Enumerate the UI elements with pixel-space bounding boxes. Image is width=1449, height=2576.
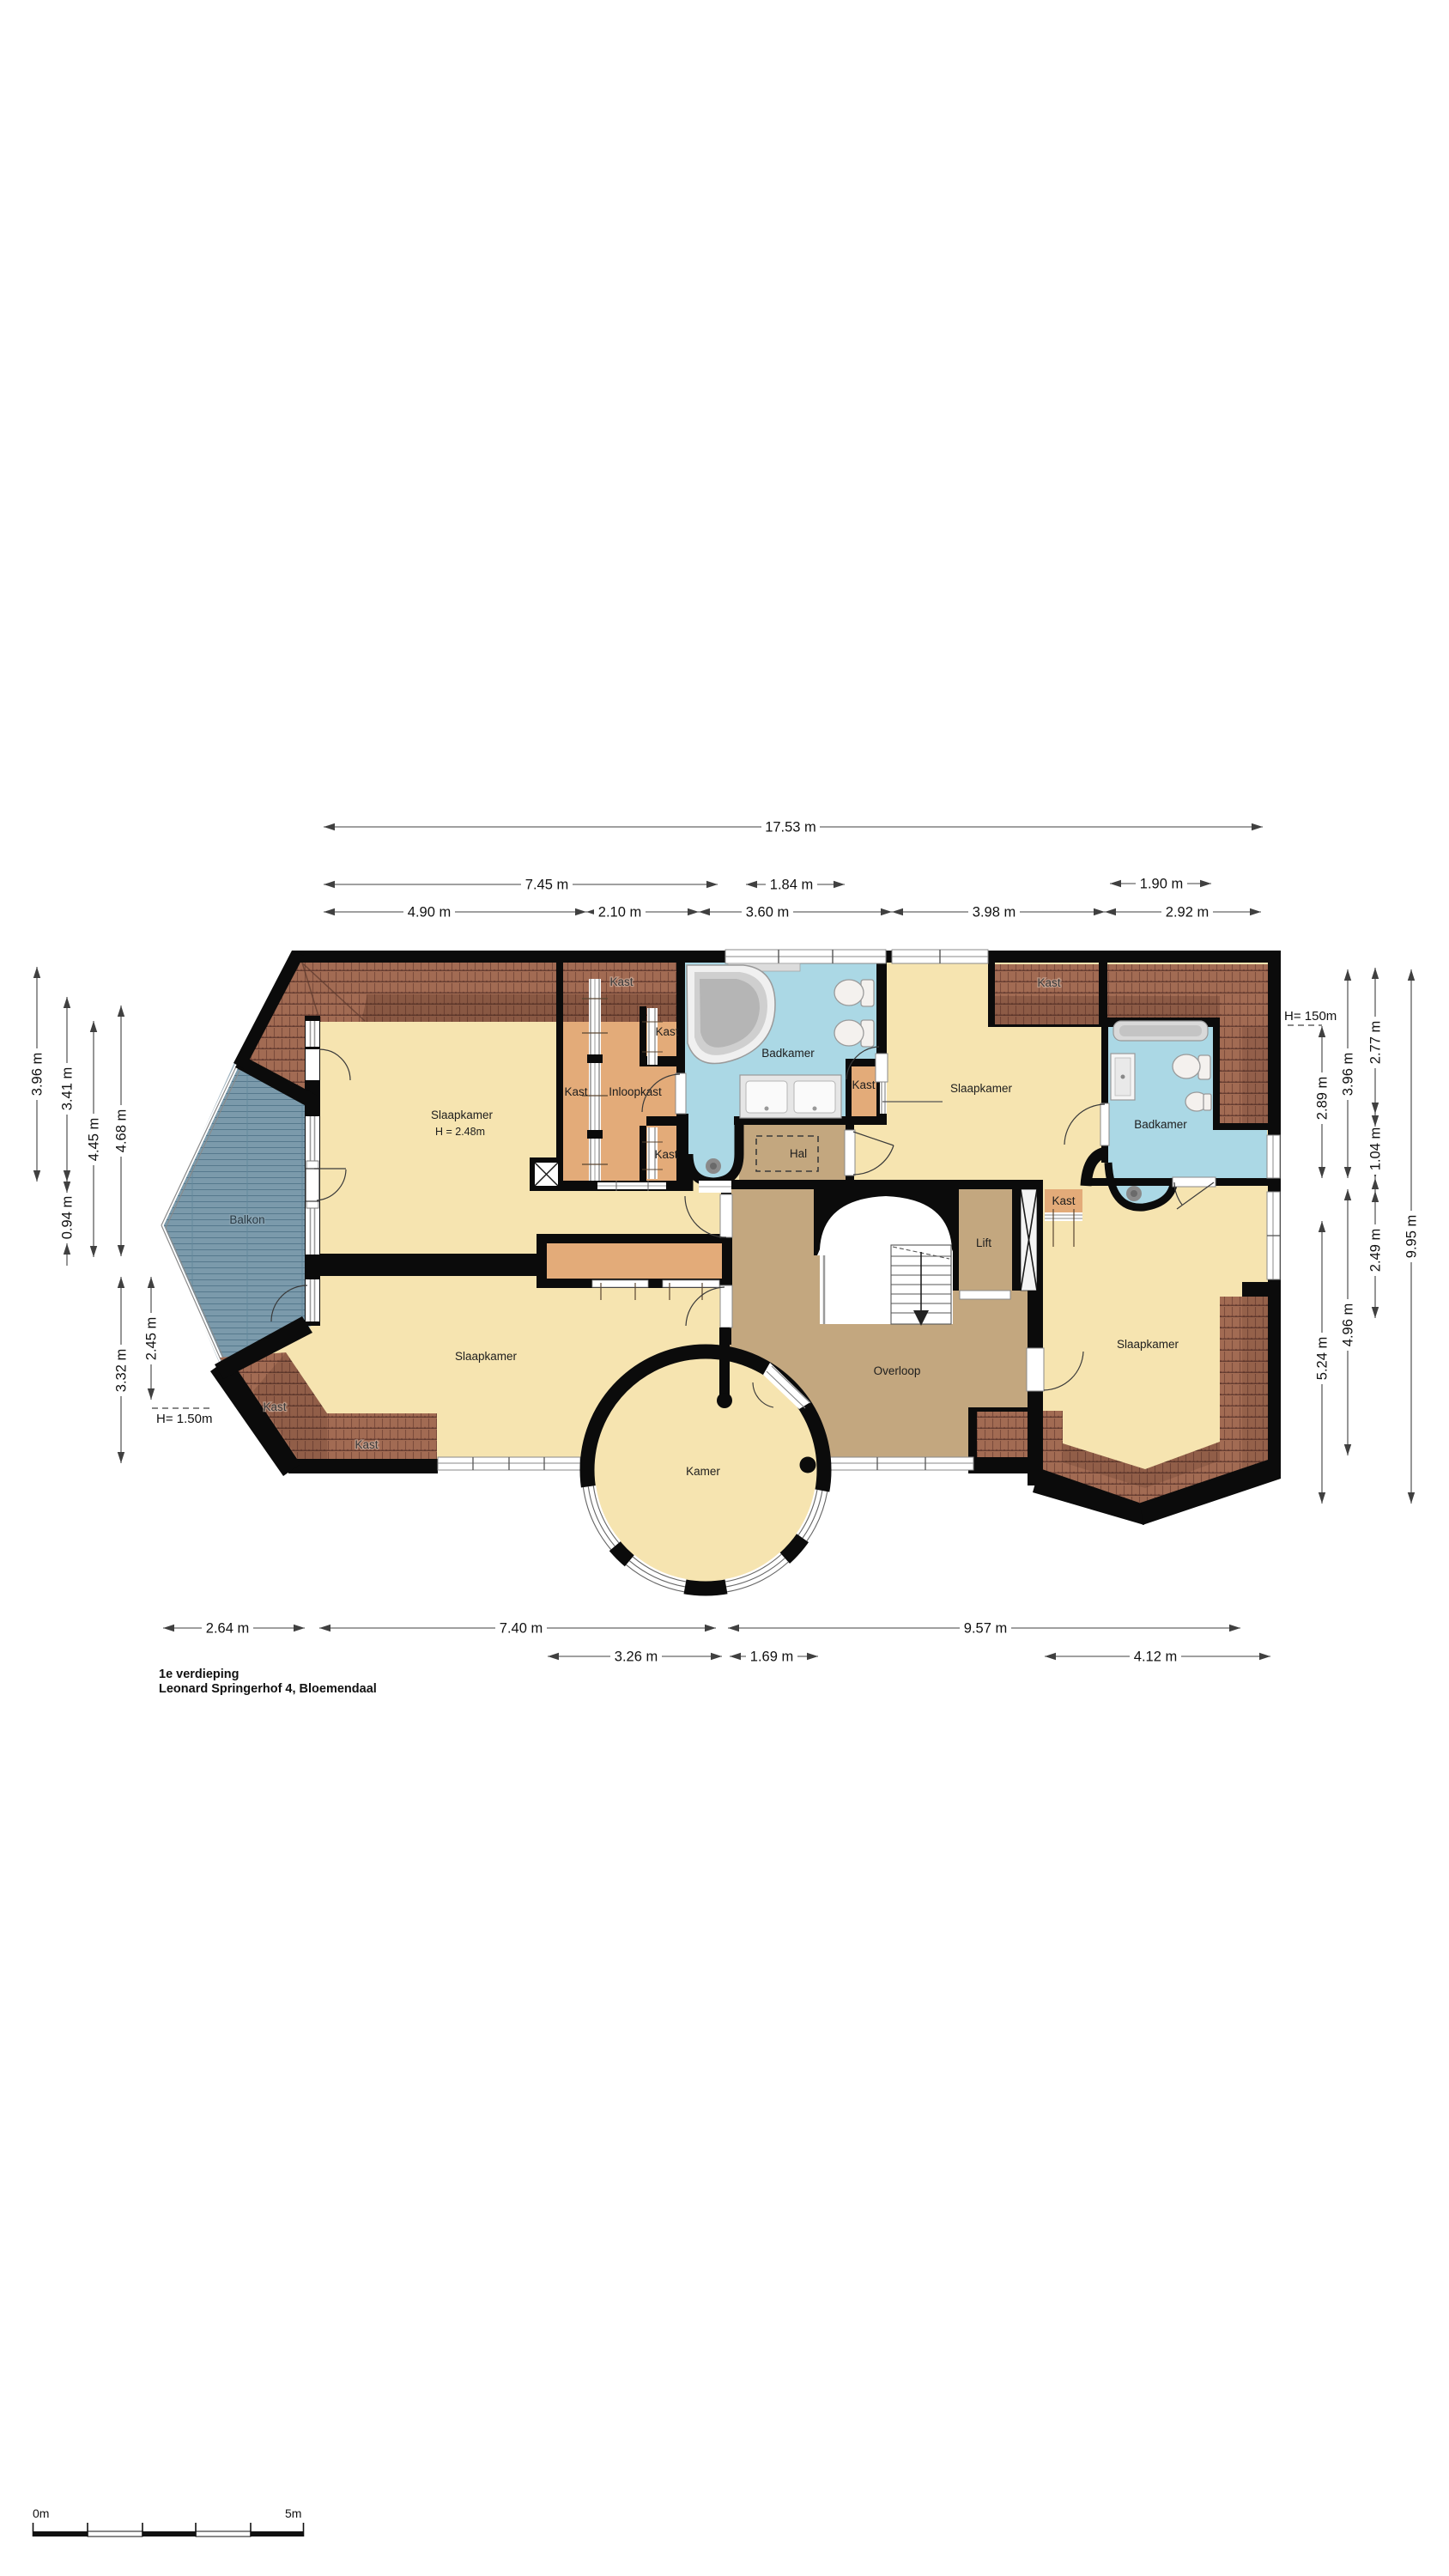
svg-text:2.64 m: 2.64 m — [206, 1621, 249, 1637]
svg-text:3.98 m: 3.98 m — [973, 905, 1016, 920]
svg-text:17.53 m: 17.53 m — [765, 820, 816, 835]
svg-text:3.60 m: 3.60 m — [746, 905, 789, 920]
svg-text:Lift: Lift — [976, 1236, 991, 1249]
svg-text:4.68 m: 4.68 m — [114, 1109, 130, 1152]
svg-text:Kast: Kast — [1037, 976, 1060, 989]
svg-text:Slaapkamer: Slaapkamer — [455, 1350, 518, 1363]
svg-text:5.24 m: 5.24 m — [1315, 1337, 1331, 1380]
svg-text:H= 150m: H= 150m — [1284, 1009, 1337, 1024]
svg-text:2.89 m: 2.89 m — [1315, 1077, 1331, 1120]
svg-text:Slaapkamer: Slaapkamer — [1117, 1338, 1179, 1351]
svg-text:3.96 m: 3.96 m — [1341, 1053, 1356, 1096]
svg-text:Kast: Kast — [1052, 1194, 1075, 1207]
svg-text:Slaapkamer: Slaapkamer — [950, 1082, 1013, 1095]
svg-text:Inloopkast: Inloopkast — [609, 1085, 662, 1098]
svg-text:Kamer: Kamer — [686, 1465, 720, 1478]
svg-text:3.26 m: 3.26 m — [615, 1649, 658, 1665]
svg-text:H = 2.48m: H = 2.48m — [435, 1126, 485, 1138]
svg-text:9.95 m: 9.95 m — [1404, 1215, 1420, 1258]
svg-text:Kast: Kast — [564, 1085, 587, 1098]
svg-text:0m: 0m — [33, 2506, 49, 2520]
svg-text:Badkamer: Badkamer — [1134, 1118, 1187, 1131]
svg-text:1.69 m: 1.69 m — [750, 1649, 793, 1665]
svg-text:1.84 m: 1.84 m — [770, 878, 813, 893]
svg-text:Kast: Kast — [263, 1400, 286, 1413]
svg-text:3.32 m: 3.32 m — [114, 1349, 130, 1392]
svg-text:Kast: Kast — [654, 1148, 677, 1161]
svg-text:7.40 m: 7.40 m — [500, 1621, 543, 1637]
svg-text:3.96 m: 3.96 m — [30, 1053, 45, 1096]
svg-text:1e verdieping: 1e verdieping — [159, 1668, 239, 1681]
svg-text:Slaapkamer: Slaapkamer — [431, 1109, 494, 1121]
svg-text:2.77 m: 2.77 m — [1368, 1021, 1384, 1064]
svg-text:Overloop: Overloop — [874, 1364, 921, 1377]
svg-text:Hal: Hal — [790, 1147, 807, 1160]
svg-text:2.10 m: 2.10 m — [598, 905, 641, 920]
svg-text:2.49 m: 2.49 m — [1368, 1229, 1384, 1272]
svg-text:Badkamer: Badkamer — [761, 1047, 815, 1060]
svg-text:9.57 m: 9.57 m — [964, 1621, 1007, 1637]
svg-text:4.90 m: 4.90 m — [408, 905, 451, 920]
svg-text:Kast: Kast — [609, 975, 633, 988]
svg-text:Kast: Kast — [355, 1438, 378, 1451]
svg-text:2.45 m: 2.45 m — [144, 1317, 160, 1360]
svg-text:Kast: Kast — [655, 1025, 678, 1038]
svg-text:7.45 m: 7.45 m — [525, 878, 568, 893]
svg-text:Kast: Kast — [852, 1078, 875, 1091]
svg-text:Balkon: Balkon — [229, 1213, 264, 1226]
svg-text:1.04 m: 1.04 m — [1368, 1127, 1384, 1170]
svg-text:H= 1.50m: H= 1.50m — [156, 1412, 212, 1426]
svg-text:2.92 m: 2.92 m — [1166, 905, 1209, 920]
svg-text:4.45 m: 4.45 m — [87, 1118, 102, 1161]
svg-text:3.41 m: 3.41 m — [60, 1067, 76, 1110]
svg-text:4.96 m: 4.96 m — [1341, 1303, 1356, 1346]
svg-text:1.90 m: 1.90 m — [1140, 877, 1183, 892]
svg-text:4.12 m: 4.12 m — [1134, 1649, 1177, 1665]
svg-text:5m: 5m — [285, 2506, 301, 2520]
svg-text:0.94 m: 0.94 m — [60, 1196, 76, 1239]
svg-text:Leonard Springerhof 4, Bloemen: Leonard Springerhof 4, Bloemendaal — [159, 1682, 377, 1696]
